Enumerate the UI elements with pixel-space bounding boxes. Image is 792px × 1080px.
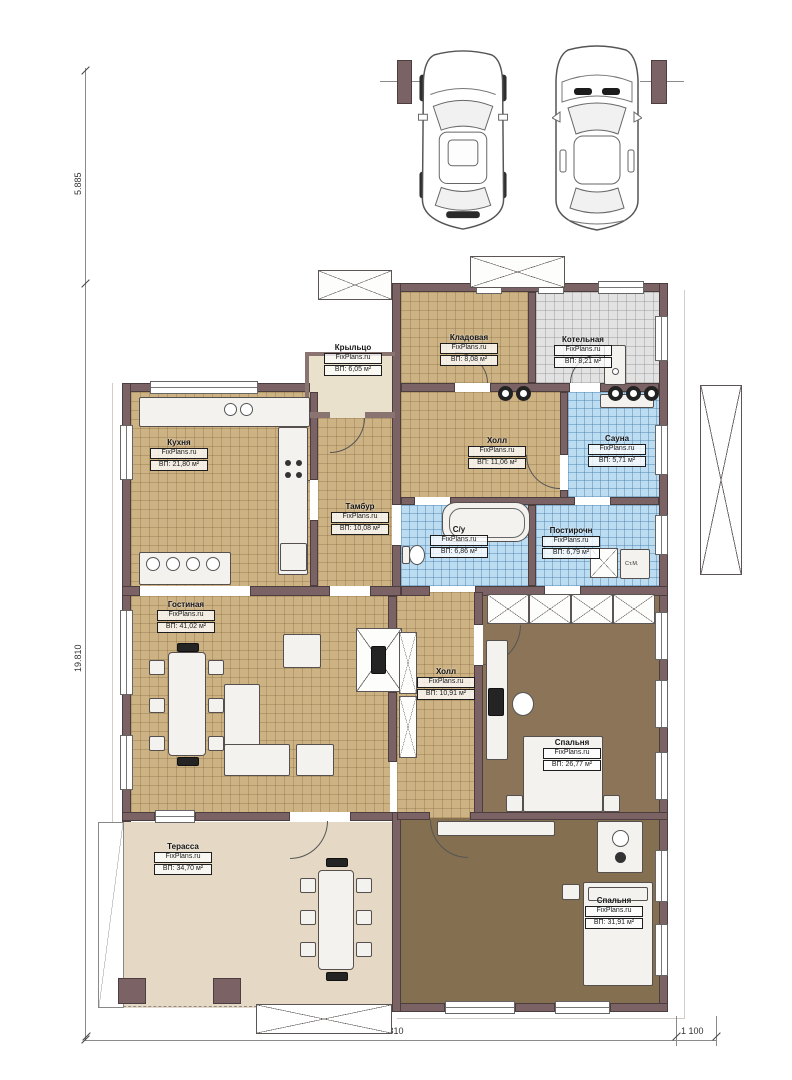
toilet — [409, 545, 425, 565]
window — [655, 924, 668, 976]
watermark: FixPlans.ru — [324, 353, 382, 364]
wall — [401, 383, 455, 392]
watermark: FixPlans.ru — [468, 446, 526, 457]
bar-stool — [146, 557, 160, 571]
wall — [388, 596, 397, 632]
room-area: ВП: 31,91 м² — [585, 918, 643, 929]
watermark: FixPlans.ru — [157, 610, 215, 621]
window — [598, 281, 644, 294]
wall — [610, 497, 659, 505]
room-area: ВП: 10,91 м² — [417, 689, 475, 700]
car-top-view-icon — [552, 42, 642, 232]
chair — [356, 910, 372, 925]
desk-chair — [512, 692, 534, 716]
room-area: ВП: 8,08 м² — [440, 355, 498, 366]
roof-eave-line — [684, 290, 685, 1018]
fridge — [280, 543, 307, 571]
chair — [208, 660, 224, 675]
chair — [208, 698, 224, 713]
room-kladovaya-label: Кладовая FixPlans.ru ВП: 8,08 м² — [436, 333, 502, 366]
room-name: Терасса — [167, 842, 199, 851]
watermark: FixPlans.ru — [542, 536, 600, 547]
window — [555, 1001, 610, 1014]
fireplace-firebox — [371, 646, 386, 674]
watermark: FixPlans.ru — [543, 748, 601, 759]
entrance-steps — [470, 256, 565, 288]
stove-burner-icon — [296, 460, 302, 466]
window — [445, 1001, 515, 1014]
dimension-label-19810: 19.810 — [73, 628, 83, 672]
chair — [356, 942, 372, 957]
wall — [401, 586, 430, 596]
stove-burner-icon — [296, 472, 302, 478]
wall — [250, 586, 330, 596]
wall — [122, 812, 155, 821]
equipment-icon — [644, 386, 659, 401]
bar-stool — [166, 557, 180, 571]
wall — [392, 812, 401, 1012]
room-name: Кладовая — [450, 333, 488, 342]
room-name: Спальня — [555, 738, 590, 747]
wardrobe — [613, 594, 655, 624]
room-area: ВП: 6,05 м² — [324, 365, 382, 376]
chair — [326, 972, 348, 981]
window — [150, 381, 258, 394]
chair — [300, 910, 316, 925]
room-name: Холл — [436, 667, 456, 676]
wall — [474, 592, 483, 625]
floor-plan: 5.885 19.810 14 810 1 100 — [0, 0, 792, 1080]
ottoman — [296, 744, 334, 776]
room-name: Тамбур — [345, 502, 374, 511]
sofa — [224, 744, 290, 776]
room-area: ВП: 6,79 м² — [542, 548, 600, 559]
room-tambur-label: Тамбур FixPlans.ru ВП: 10,08 м² — [327, 502, 393, 535]
wall — [392, 283, 401, 505]
roof-eave-line — [397, 1018, 685, 1019]
armchair — [283, 634, 321, 668]
window — [655, 612, 668, 660]
wall — [350, 812, 397, 821]
wardrobe — [399, 696, 417, 758]
bar-stool — [186, 557, 200, 571]
room-area: ВП: 34,70 м² — [154, 864, 212, 875]
room-gostinaya-label: Гостиная FixPlans.ru ВП: 41,02 м² — [153, 600, 219, 633]
sink-icon — [240, 403, 253, 416]
room-kryltso-label: Крыльцо FixPlans.ru ВП: 6,05 м² — [320, 343, 386, 376]
room-area: ВП: 26,77 м² — [543, 760, 601, 771]
room-sauna-label: Сауна FixPlans.ru ВП: 5,71 м² — [584, 434, 650, 467]
porch-wall — [365, 412, 395, 418]
room-name: Спальня — [597, 896, 632, 905]
equipment-icon — [626, 386, 641, 401]
roof-eave-line — [112, 383, 113, 823]
porch-canopy — [318, 270, 392, 300]
dimension-label-5885: 5.885 — [73, 155, 83, 195]
pillar — [397, 60, 412, 104]
nightstand — [506, 795, 523, 812]
wall — [122, 586, 140, 596]
room-holl1-label: Холл FixPlans.ru ВП: 11,06 м² — [464, 436, 530, 469]
wardrobe — [529, 594, 571, 624]
watermark: FixPlans.ru — [154, 852, 212, 863]
window — [655, 316, 668, 361]
watermark: FixPlans.ru — [588, 444, 646, 455]
watermark: FixPlans.ru — [585, 906, 643, 917]
watermark: FixPlans.ru — [417, 677, 475, 688]
dining-table — [168, 652, 206, 756]
room-terassa-label: Терасса FixPlans.ru ВП: 34,70 м² — [150, 842, 216, 875]
wardrobe — [571, 594, 613, 624]
nightstand — [603, 795, 620, 812]
terrace-steps — [256, 1004, 392, 1034]
equipment-icon — [498, 386, 513, 401]
stove-burner-icon — [285, 460, 291, 466]
wardrobe — [487, 594, 529, 624]
room-name: Постирочн — [550, 526, 593, 535]
terrace-table — [318, 870, 354, 970]
chair — [149, 660, 165, 675]
wall — [370, 586, 401, 596]
room-kuhnya-label: Кухня FixPlans.ru ВП: 21,80 м² — [146, 438, 212, 471]
wall — [560, 392, 568, 455]
bar-stool — [206, 557, 220, 571]
window — [155, 810, 195, 823]
room-holl2-label: Холл FixPlans.ru ВП: 10,91 м² — [413, 667, 479, 700]
terrace-pillar — [118, 978, 146, 1004]
room-postirochnaya-label: Постирочн FixPlans.ru ВП: 6,79 м² — [538, 526, 604, 559]
watermark: FixPlans.ru — [554, 345, 612, 356]
car-top-view-icon — [418, 45, 508, 233]
wall — [610, 1003, 668, 1012]
watermark: FixPlans.ru — [440, 343, 498, 354]
room-spalnya1-label: Спальня FixPlans.ru ВП: 26,77 м² — [539, 738, 605, 771]
dimension-ext-line — [716, 1016, 717, 1046]
wall — [388, 692, 397, 762]
room-name: Котельная — [562, 335, 604, 344]
wall — [397, 1003, 445, 1012]
window — [655, 850, 668, 902]
sink-icon — [612, 830, 629, 847]
watermark: FixPlans.ru — [150, 448, 208, 459]
chair — [177, 757, 199, 766]
pillar — [651, 60, 667, 104]
chair — [208, 736, 224, 751]
chair — [149, 736, 165, 751]
wall — [397, 812, 430, 820]
dimension-line-left — [85, 68, 86, 1040]
room-area: ВП: 41,02 м² — [157, 622, 215, 633]
room-su-label: С/у FixPlans.ru ВП: 6,86 м² — [426, 525, 492, 558]
room-name: Холл — [487, 436, 507, 445]
window — [120, 425, 133, 480]
equipment-icon — [608, 386, 623, 401]
window — [120, 735, 133, 790]
nightstand — [562, 884, 580, 900]
wall — [401, 497, 415, 505]
wall — [310, 392, 318, 480]
room-area: ВП: 8,21 м² — [554, 357, 612, 368]
window — [120, 610, 133, 695]
desk-equipment — [488, 688, 504, 716]
room-area: ВП: 5,71 м² — [588, 456, 646, 467]
chair — [356, 878, 372, 893]
dimension-ext-line — [676, 1016, 677, 1046]
room-name: Кухня — [167, 438, 190, 447]
wall — [310, 520, 318, 586]
window — [655, 680, 668, 728]
room-area: ВП: 6,86 м² — [430, 547, 488, 558]
window — [655, 515, 668, 555]
washing-machine-label: Ст.М. — [625, 561, 639, 567]
dimension-line-bottom — [85, 1040, 717, 1041]
dresser — [597, 821, 643, 873]
equipment-icon — [516, 386, 531, 401]
chair — [326, 858, 348, 867]
room-name: Крыльцо — [335, 343, 371, 352]
equipment-icon — [615, 852, 626, 863]
wall — [195, 812, 290, 821]
room-name: Гостиная — [168, 600, 204, 609]
chair — [300, 878, 316, 893]
roof-overhang — [700, 385, 742, 575]
room-name: С/у — [453, 525, 465, 534]
wall — [515, 1003, 555, 1012]
wall — [470, 812, 668, 820]
chair — [177, 643, 199, 652]
window — [655, 752, 668, 800]
room-area: ВП: 11,06 м² — [468, 458, 526, 469]
room-kotelnaya-label: Котельная FixPlans.ru ВП: 8,21 м² — [550, 335, 616, 368]
watermark: FixPlans.ru — [430, 535, 488, 546]
watermark: FixPlans.ru — [331, 512, 389, 523]
room-area: ВП: 21,80 м² — [150, 460, 208, 471]
wall — [528, 292, 536, 383]
room-area: ВП: 10,08 м² — [331, 524, 389, 535]
room-name: Сауна — [605, 434, 629, 443]
terrace-pillar — [213, 978, 241, 1004]
chair — [149, 698, 165, 713]
room-spalnya2-label: Спальня FixPlans.ru ВП: 31,91 м² — [581, 896, 647, 929]
dimension-label-1100: 1 100 — [681, 1026, 704, 1036]
cabinet — [437, 821, 555, 836]
chair — [300, 942, 316, 957]
window — [655, 425, 668, 475]
stove-burner-icon — [285, 472, 291, 478]
sink-icon — [224, 403, 237, 416]
boiler-dial-icon — [612, 368, 619, 375]
wall — [392, 545, 401, 592]
